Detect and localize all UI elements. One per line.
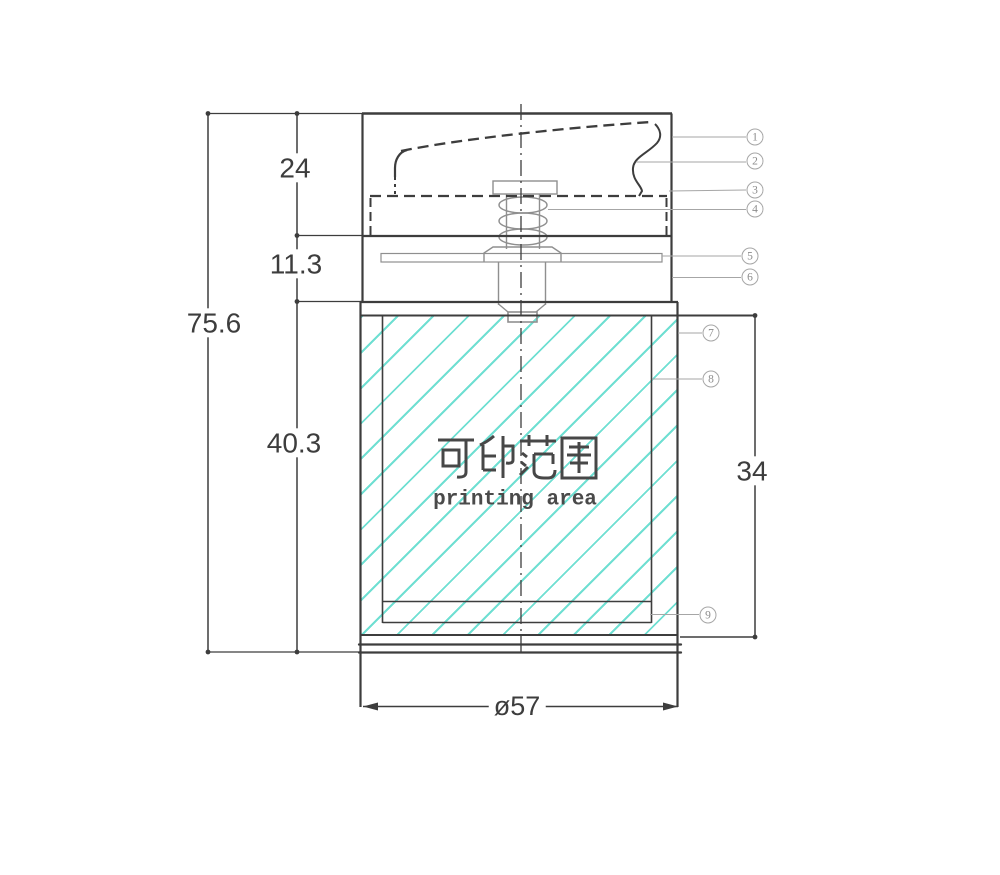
stem-foot — [508, 312, 537, 322]
callout-2: 2 — [747, 153, 764, 170]
dim-total-height: 75.6 — [182, 308, 247, 337]
dim-cap-height: 24 — [274, 153, 315, 182]
dim-diameter: ø57 — [489, 692, 546, 720]
piston-lines — [383, 602, 652, 623]
stem-flare — [499, 304, 546, 312]
actuator-left-curl — [395, 150, 407, 177]
callout-6: 6 — [742, 269, 759, 286]
dimension-lines — [206, 111, 758, 710]
cap-side-walls — [363, 114, 672, 303]
callout-7: 7 — [703, 325, 720, 342]
printing-area-label-en: printing area — [433, 489, 597, 512]
dim-printing-height: 34 — [731, 456, 772, 485]
technical-drawing-page: 75.6 24 11.3 40.3 34 ø57 可印范围 printing a… — [0, 0, 1000, 875]
pump-head-block — [493, 181, 557, 194]
callout-9: 9 — [700, 607, 717, 624]
dim-body-height: 40.3 — [262, 428, 327, 457]
actuator-hidden-outline — [370, 122, 667, 235]
left-extension-lines — [207, 114, 362, 653]
callout-3: 3 — [747, 182, 764, 199]
callout-1: 1 — [747, 129, 764, 146]
printing-area-label-cn: 可印范围 — [436, 430, 606, 482]
base-seam-lines — [359, 645, 681, 653]
dim-neck-height: 11.3 — [265, 249, 327, 278]
pump-flange — [484, 247, 561, 262]
nozzle-curve — [633, 124, 660, 196]
actuator-top-dashed — [401, 122, 651, 151]
callout-5: 5 — [742, 248, 759, 265]
bottle-outline — [359, 114, 757, 708]
callout-4: 4 — [747, 201, 764, 218]
pump-stem-lower — [499, 262, 546, 305]
callout-8: 8 — [703, 371, 720, 388]
pump-stem-upper — [507, 194, 540, 249]
